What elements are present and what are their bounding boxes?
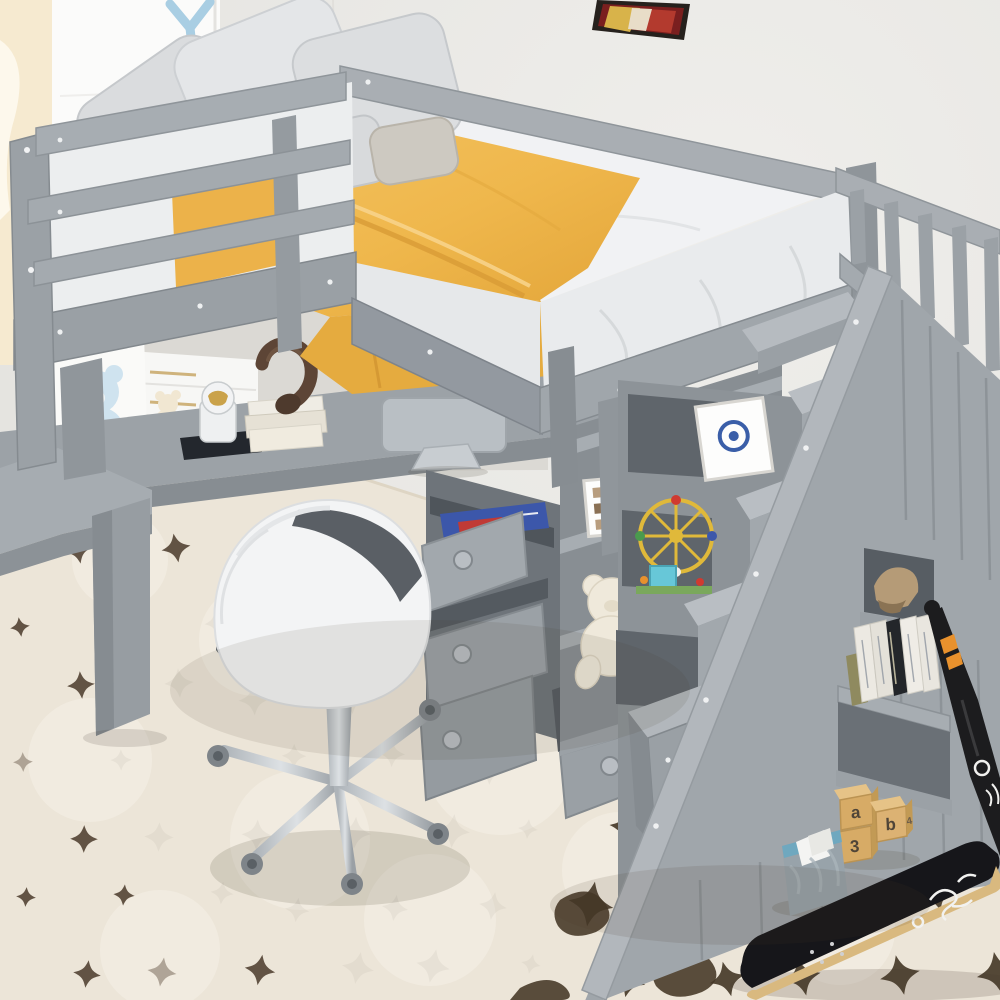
bed-leg-mid	[548, 346, 578, 488]
block-a-letter: a	[850, 803, 861, 822]
bed-leg-left	[60, 358, 106, 480]
underbed-shadow	[170, 620, 690, 760]
head-post-left	[10, 132, 56, 470]
block-b-letter: b	[885, 815, 896, 835]
floor-drawer-knob[interactable]	[601, 757, 619, 775]
top-drawer-knob[interactable]	[454, 551, 472, 569]
product-photo: NATIVE CHARCOAL	[0, 0, 1000, 1000]
block-3-letter: 3	[849, 837, 859, 856]
scene: NATIVE CHARCOAL	[0, 0, 1000, 1000]
whiteboard-blue-emblem	[695, 398, 773, 481]
stair-shadow	[550, 865, 930, 945]
